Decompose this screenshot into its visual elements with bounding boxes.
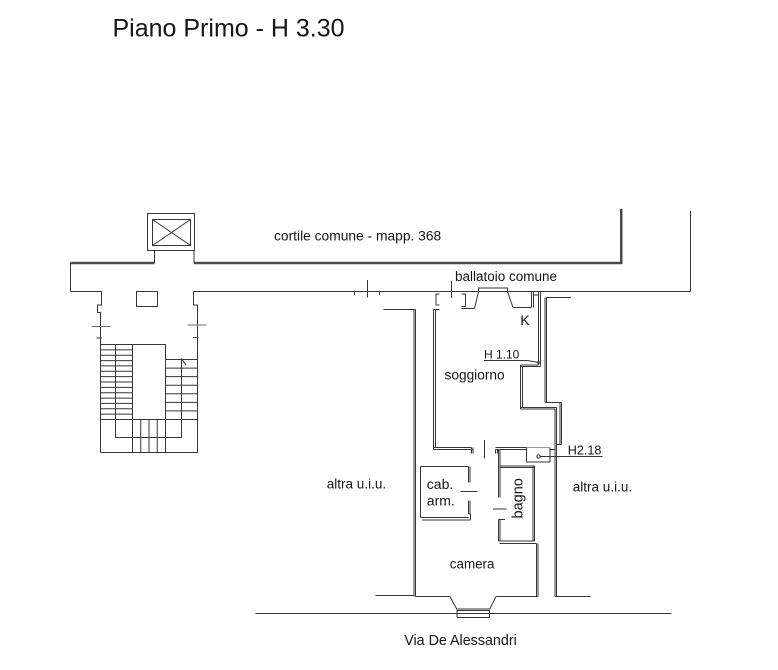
svg-text:arm.: arm.: [427, 493, 455, 509]
svg-text:ballatoio comune: ballatoio comune: [455, 269, 557, 284]
svg-text:Via De Alessandri: Via De Alessandri: [404, 633, 517, 649]
svg-text:altra u.i.u.: altra u.i.u.: [327, 477, 386, 492]
svg-text:Piano Primo - H 3.30: Piano Primo - H 3.30: [113, 15, 345, 43]
svg-text:cab.: cab.: [427, 476, 453, 492]
svg-text:soggiorno: soggiorno: [445, 368, 506, 383]
svg-text:K: K: [520, 313, 530, 329]
svg-text:H 1.10: H 1.10: [484, 348, 520, 362]
svg-text:camera: camera: [450, 557, 495, 572]
svg-text:cortile comune - mapp. 368: cortile comune - mapp. 368: [274, 229, 442, 244]
svg-text:altra u.i.u.: altra u.i.u.: [573, 480, 632, 495]
svg-text:H2.18: H2.18: [568, 444, 602, 458]
svg-text:bagno: bagno: [511, 478, 527, 518]
